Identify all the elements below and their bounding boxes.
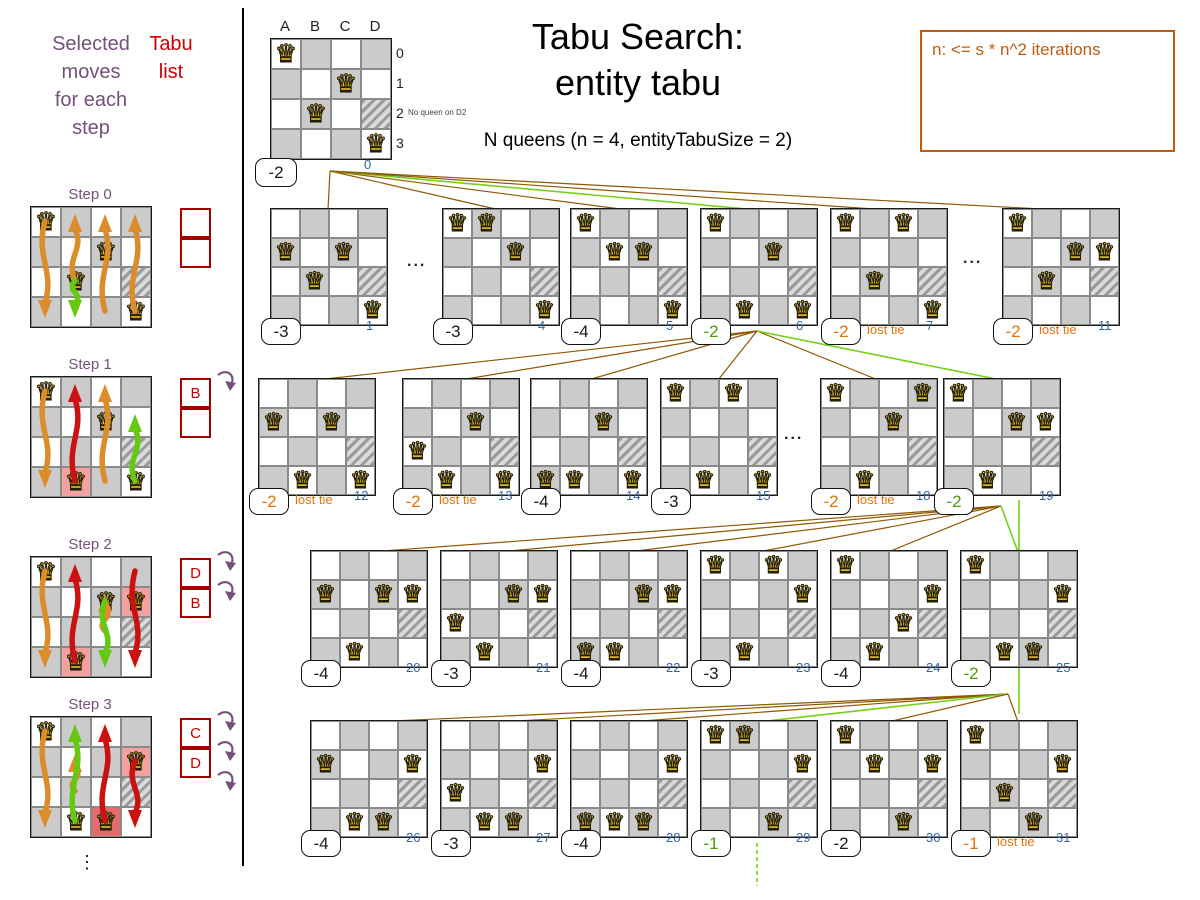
board-cell — [889, 296, 918, 325]
board-cell — [629, 609, 658, 638]
queen-icon: ♛ — [373, 811, 395, 835]
board-cell: ♛ — [61, 467, 91, 497]
board-cell: ♛ — [1031, 408, 1060, 437]
board-cell: ♛ — [860, 638, 889, 667]
board-cell — [879, 437, 908, 466]
board-cell — [973, 379, 1002, 408]
tabu-search-diagram: Selected moves for each step Tabu list T… — [0, 0, 1200, 900]
board-cell: ♛ — [441, 779, 470, 808]
board-cell — [759, 209, 788, 238]
score-23: -3 — [691, 660, 731, 687]
queen-icon: ♛ — [864, 753, 886, 777]
board-cell — [889, 779, 918, 808]
board-cell — [121, 207, 151, 237]
queen-icon: ♛ — [604, 241, 626, 265]
board-cell — [850, 379, 879, 408]
queen-icon: ♛ — [763, 241, 785, 265]
board-cell — [1019, 609, 1048, 638]
board-cell — [31, 467, 61, 497]
board-cell: ♛ — [1019, 808, 1048, 837]
board-cell — [461, 379, 490, 408]
queen-icon: ♛ — [1094, 241, 1116, 265]
ellipsis-gap: ... — [784, 426, 803, 444]
index-11: 11 — [1098, 318, 1112, 333]
queen-icon: ♛ — [864, 641, 886, 665]
tabu-box-0-1 — [180, 238, 211, 268]
tree-edge — [328, 171, 330, 210]
queen-icon: ♛ — [893, 811, 915, 835]
score-4: -3 — [433, 318, 473, 345]
ellipsis-gap: ... — [963, 250, 982, 268]
queen-icon: ♛ — [633, 241, 655, 265]
step-label-0: Step 0 — [30, 186, 150, 203]
tabu-box-2-1: B — [180, 588, 211, 618]
board-cell — [301, 129, 331, 159]
board-cell — [340, 750, 369, 779]
queen-icon: ♛ — [402, 753, 424, 777]
board-cell — [860, 238, 889, 267]
queen-icon: ♛ — [344, 641, 366, 665]
queen-icon: ♛ — [292, 469, 314, 493]
board-cell — [121, 717, 151, 747]
board-cell — [91, 617, 121, 647]
board-cell — [91, 557, 121, 587]
board-cell — [61, 377, 91, 407]
board-cell — [629, 779, 658, 808]
board-cell: ♛ — [1032, 267, 1061, 296]
board-cell — [618, 408, 647, 437]
board-cell — [346, 408, 375, 437]
tree-board-14: ♛♛♛♛ — [530, 378, 648, 496]
board-cell — [331, 129, 361, 159]
board-cell — [860, 721, 889, 750]
board-cell — [121, 407, 151, 437]
board-cell: ♛ — [288, 466, 317, 495]
queen-icon: ♛ — [35, 380, 57, 405]
board-cell — [61, 617, 91, 647]
index-21: 21 — [536, 660, 550, 675]
board-cell: ♛ — [589, 408, 618, 437]
score-14: -4 — [521, 488, 561, 515]
board-cell — [600, 209, 629, 238]
board-cell — [301, 69, 331, 99]
tree-board-29: ♛♛♛♛ — [700, 720, 818, 838]
tree-board-13: ♛♛♛♛ — [402, 378, 520, 496]
board-cell — [600, 721, 629, 750]
board-cell — [571, 721, 600, 750]
queen-icon: ♛ — [994, 782, 1016, 806]
tree-edge — [498, 694, 1008, 722]
board-cell: ♛ — [879, 408, 908, 437]
board-cell — [918, 551, 947, 580]
board-cell — [91, 297, 121, 327]
board-cell: ♛ — [61, 647, 91, 677]
board-cell — [629, 750, 658, 779]
board-cell: ♛ — [571, 209, 600, 238]
board-cell — [973, 437, 1002, 466]
queen-icon: ♛ — [965, 554, 987, 578]
board-cell — [271, 69, 301, 99]
board-cell — [860, 808, 889, 837]
board-cell — [530, 267, 559, 296]
board-cell — [759, 779, 788, 808]
board-cell — [369, 638, 398, 667]
board-cell — [531, 379, 560, 408]
tree-edge — [757, 331, 1001, 380]
board-cell — [271, 267, 300, 296]
score-26: -4 — [301, 830, 341, 857]
queen-icon: ♛ — [734, 724, 756, 748]
board-cell — [121, 237, 151, 267]
board-cell — [499, 750, 528, 779]
board-cell — [661, 437, 690, 466]
board-cell: ♛ — [398, 580, 427, 609]
board-cell: ♛ — [788, 750, 817, 779]
score-21: -3 — [431, 660, 471, 687]
board-cell — [61, 237, 91, 267]
queen-icon: ♛ — [994, 641, 1016, 665]
row-label: 1 — [396, 75, 404, 91]
score-15: -3 — [651, 488, 691, 515]
tree-edge — [588, 331, 757, 380]
board-cell — [831, 580, 860, 609]
board-cell — [490, 408, 519, 437]
board-cell — [259, 379, 288, 408]
board-cell — [690, 437, 719, 466]
board-cell — [889, 721, 918, 750]
queen-icon: ♛ — [65, 270, 87, 295]
board-cell — [629, 551, 658, 580]
board-cell: ♛ — [398, 750, 427, 779]
tree-board-25: ♛♛♛♛ — [960, 550, 1078, 668]
lost-tie-label-13: lost tie — [439, 492, 477, 507]
board-cell: ♛ — [300, 267, 329, 296]
board-cell — [499, 721, 528, 750]
board-cell — [288, 408, 317, 437]
board-cell — [730, 779, 759, 808]
queen-icon: ♛ — [912, 382, 934, 406]
queen-icon: ♛ — [1052, 583, 1074, 607]
column-label: C — [330, 18, 360, 35]
index-root: 0 — [364, 157, 371, 172]
board-cell — [403, 408, 432, 437]
board-cell — [831, 750, 860, 779]
board-cell: ♛ — [340, 638, 369, 667]
board-cell — [358, 267, 387, 296]
queen-icon: ♛ — [321, 411, 343, 435]
board-cell — [121, 777, 151, 807]
board-cell: ♛ — [1003, 209, 1032, 238]
board-cell: ♛ — [730, 638, 759, 667]
board-cell — [300, 296, 329, 325]
board-cell — [31, 407, 61, 437]
tree-edge — [498, 506, 1001, 552]
tree-board-12: ♛♛♛♛ — [258, 378, 376, 496]
board-cell — [730, 267, 759, 296]
board-cell: ♛ — [908, 379, 937, 408]
board-cell: ♛ — [472, 209, 501, 238]
index-20: 20 — [406, 660, 420, 675]
board-cell — [990, 808, 1019, 837]
queen-icon: ♛ — [125, 590, 147, 615]
board-cell — [317, 466, 346, 495]
board-cell — [990, 750, 1019, 779]
board-cell — [346, 437, 375, 466]
board-cell — [528, 551, 557, 580]
board-cell — [918, 209, 947, 238]
queen-icon: ♛ — [335, 72, 357, 97]
queen-icon: ♛ — [763, 554, 785, 578]
board-cell — [271, 209, 300, 238]
row-label: 3 — [396, 135, 404, 151]
tabu-box-2-0: D — [180, 558, 211, 588]
board-cell: ♛ — [821, 379, 850, 408]
board-cell — [443, 267, 472, 296]
queen-icon: ♛ — [792, 583, 814, 607]
board-cell — [889, 638, 918, 667]
board-cell — [629, 267, 658, 296]
board-cell — [571, 750, 600, 779]
board-cell — [618, 437, 647, 466]
board-cell: ♛ — [31, 717, 61, 747]
board-cell: ♛ — [730, 721, 759, 750]
queen-icon: ♛ — [792, 753, 814, 777]
board-cell — [990, 721, 1019, 750]
board-cell — [91, 777, 121, 807]
board-cell: ♛ — [121, 297, 151, 327]
board-cell: ♛ — [369, 580, 398, 609]
board-cell — [346, 379, 375, 408]
score-19: -2 — [934, 488, 974, 515]
board-cell: ♛ — [91, 237, 121, 267]
board-cell — [31, 777, 61, 807]
board-cell — [499, 779, 528, 808]
board-cell — [432, 408, 461, 437]
queen-icon: ♛ — [705, 212, 727, 236]
board-cell — [61, 437, 91, 467]
board-cell — [369, 609, 398, 638]
board-cell — [472, 238, 501, 267]
heading-line: for each — [20, 86, 162, 114]
queen-icon: ♛ — [893, 212, 915, 236]
board-cell: ♛ — [441, 609, 470, 638]
board-cell — [831, 609, 860, 638]
board-cell — [331, 99, 361, 129]
board-cell — [121, 647, 151, 677]
board-cell — [329, 267, 358, 296]
score-30: -2 — [821, 830, 861, 857]
score-6: -2 — [691, 318, 731, 345]
board-cell — [461, 466, 490, 495]
board-cell: ♛ — [759, 551, 788, 580]
board-cell: ♛ — [701, 551, 730, 580]
queen-icon: ♛ — [315, 583, 337, 607]
board-cell: ♛ — [499, 580, 528, 609]
score-31: -1 — [951, 830, 991, 857]
index-24: 24 — [926, 660, 940, 675]
board-cell: ♛ — [31, 377, 61, 407]
board-cell — [658, 209, 687, 238]
board-cell — [403, 379, 432, 408]
board-cell: ♛ — [860, 750, 889, 779]
board-cell: ♛ — [361, 129, 391, 159]
tree-board-22: ♛♛♛♛ — [570, 550, 688, 668]
board-cell — [61, 747, 91, 777]
board-cell — [600, 267, 629, 296]
board-cell — [340, 609, 369, 638]
board-cell — [571, 580, 600, 609]
board-cell — [472, 267, 501, 296]
queen-icon: ♛ — [1023, 641, 1045, 665]
board-cell: ♛ — [331, 69, 361, 99]
queen-icon: ♛ — [1023, 811, 1045, 835]
lost-tie-label-7: lost tie — [867, 322, 905, 337]
board-cell — [658, 238, 687, 267]
column-label: D — [360, 18, 390, 35]
index-23: 23 — [796, 660, 810, 675]
board-cell — [879, 466, 908, 495]
tree-edge — [1001, 506, 1018, 552]
index-31: 31 — [1056, 830, 1070, 845]
board-cell — [331, 39, 361, 69]
index-6: 6 — [796, 318, 803, 333]
board-cell — [340, 721, 369, 750]
queen-icon: ♛ — [503, 583, 525, 607]
board-cell: ♛ — [470, 808, 499, 837]
board-cell: ♛ — [831, 551, 860, 580]
index-12: 12 — [354, 488, 368, 503]
board-cell: ♛ — [91, 807, 121, 837]
board-cell — [719, 466, 748, 495]
board-cell — [470, 580, 499, 609]
score-20: -4 — [301, 660, 341, 687]
board-cell — [1032, 296, 1061, 325]
queen-icon: ♛ — [65, 810, 87, 835]
tree-board-20: ♛♛♛♛ — [310, 550, 428, 668]
queen-icon: ♛ — [436, 469, 458, 493]
queen-icon: ♛ — [474, 641, 496, 665]
board-cell: ♛ — [432, 466, 461, 495]
queen-icon: ♛ — [503, 811, 525, 835]
board-cell — [879, 379, 908, 408]
queen-icon: ♛ — [705, 554, 727, 578]
board-cell — [91, 647, 121, 677]
queen-icon: ♛ — [604, 641, 626, 665]
tree-board-15: ♛♛♛♛ — [660, 378, 778, 496]
board-cell — [472, 296, 501, 325]
board-cell: ♛ — [860, 267, 889, 296]
board-cell — [918, 238, 947, 267]
board-cell: ♛ — [403, 437, 432, 466]
board-cell — [1090, 209, 1119, 238]
row-label: 0 — [396, 45, 404, 61]
board-cell: ♛ — [918, 580, 947, 609]
queen-icon: ♛ — [593, 411, 615, 435]
queen-icon: ♛ — [564, 469, 586, 493]
board-cell — [259, 437, 288, 466]
board-cell — [1019, 750, 1048, 779]
tabu-box-3-0: C — [180, 718, 211, 748]
board-cell: ♛ — [918, 750, 947, 779]
board-cell — [91, 267, 121, 297]
board-cell: ♛ — [961, 721, 990, 750]
board-cell: ♛ — [701, 721, 730, 750]
board-cell — [311, 551, 340, 580]
board-cell — [759, 638, 788, 667]
board-cell — [658, 551, 687, 580]
queen-icon: ♛ — [474, 811, 496, 835]
board-cell — [571, 551, 600, 580]
score-28: -4 — [561, 830, 601, 857]
board-cell: ♛ — [259, 408, 288, 437]
queen-icon: ♛ — [35, 720, 57, 745]
board-cell — [1048, 779, 1077, 808]
board-cell — [470, 750, 499, 779]
queen-icon: ♛ — [476, 212, 498, 236]
queen-icon: ♛ — [95, 240, 117, 265]
board-cell — [311, 779, 340, 808]
board-cell — [788, 609, 817, 638]
board-cell — [61, 207, 91, 237]
queen-icon: ♛ — [402, 583, 424, 607]
tree-board-19: ♛♛♛♛ — [943, 378, 1061, 496]
board-cell — [629, 638, 658, 667]
tree-board-26: ♛♛♛♛ — [310, 720, 428, 838]
board-cell — [470, 779, 499, 808]
queen-icon: ♛ — [662, 583, 684, 607]
tree-board-31: ♛♛♛♛ — [960, 720, 1078, 838]
index-30: 30 — [926, 830, 940, 845]
queen-icon: ♛ — [922, 583, 944, 607]
tabu-heading-line: Tabu — [139, 30, 203, 58]
board-cell — [31, 297, 61, 327]
queen-icon: ♛ — [734, 641, 756, 665]
queen-icon: ♛ — [35, 210, 57, 235]
root-board: ♛♛♛♛ — [270, 38, 392, 160]
board-cell — [317, 437, 346, 466]
board-cell — [889, 551, 918, 580]
step-board-0: ♛♛♛♛ — [30, 206, 152, 328]
board-cell: ♛ — [470, 638, 499, 667]
board-cell — [701, 238, 730, 267]
board-cell — [831, 238, 860, 267]
board-cell — [589, 437, 618, 466]
board-cell — [470, 551, 499, 580]
board-cell — [358, 238, 387, 267]
board-cell — [432, 379, 461, 408]
board-cell: ♛ — [701, 209, 730, 238]
score-5: -4 — [561, 318, 601, 345]
board-cell — [301, 39, 331, 69]
queen-icon: ♛ — [532, 753, 554, 777]
queen-icon: ♛ — [532, 583, 554, 607]
step-board-3: ♛♛♛♛ — [30, 716, 152, 838]
board-cell: ♛ — [61, 807, 91, 837]
board-cell — [1032, 238, 1061, 267]
queen-icon: ♛ — [465, 411, 487, 435]
board-cell — [730, 609, 759, 638]
board-cell — [759, 750, 788, 779]
index-14: 14 — [626, 488, 640, 503]
board-cell — [91, 207, 121, 237]
board-cell — [61, 587, 91, 617]
board-cell: ♛ — [528, 580, 557, 609]
column-label: B — [300, 18, 330, 35]
board-cell: ♛ — [600, 808, 629, 837]
queen-icon: ♛ — [1065, 241, 1087, 265]
board-cell: ♛ — [461, 408, 490, 437]
board-cell — [461, 437, 490, 466]
